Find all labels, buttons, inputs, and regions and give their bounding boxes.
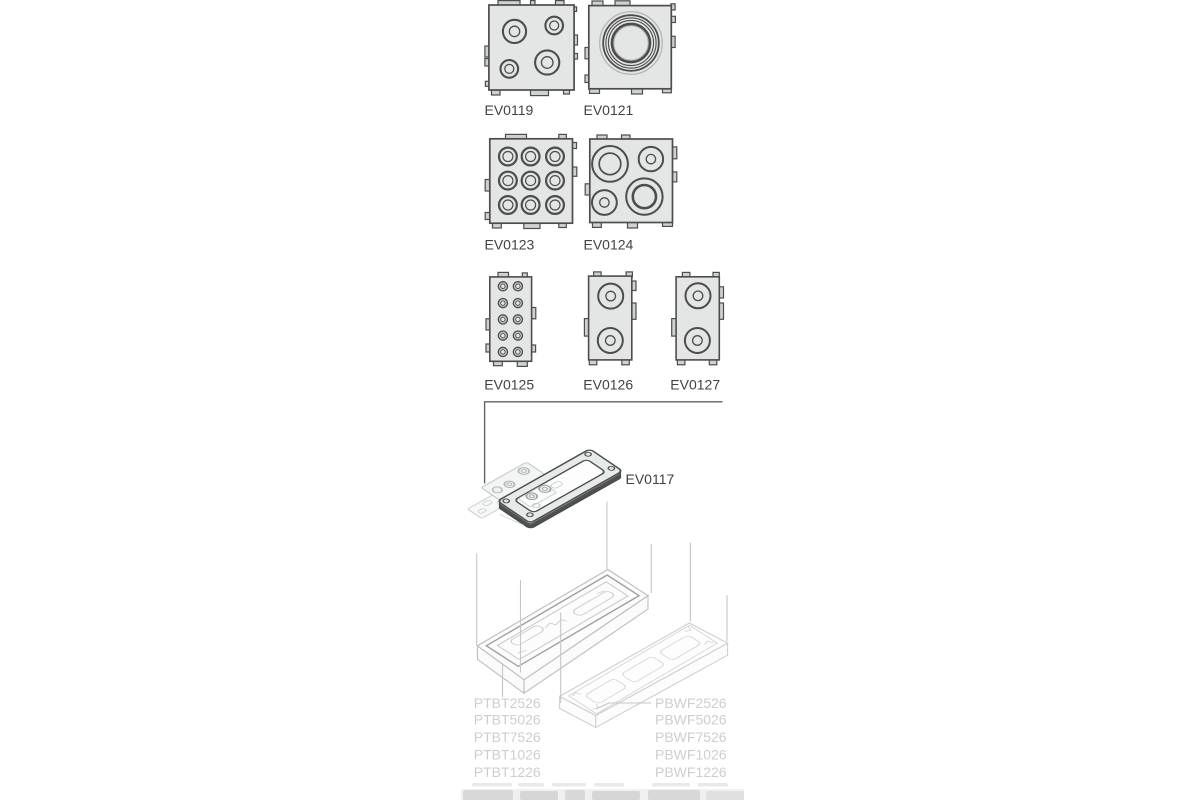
svg-text:PTBT1026: PTBT1026 [474,746,541,762]
svg-text:EV0117: EV0117 [626,471,675,487]
svg-text:PTBT1226: PTBT1226 [474,764,541,780]
svg-text:PBWF1026: PBWF1026 [655,746,727,762]
svg-text:PBWF2526: PBWF2526 [655,695,727,711]
svg-text:EV0123: EV0123 [485,236,535,252]
svg-text:EV0127: EV0127 [670,377,720,393]
svg-text:EV0126: EV0126 [583,377,633,393]
svg-text:PBWF5026: PBWF5026 [655,711,727,727]
svg-text:PBWF7526: PBWF7526 [655,729,727,745]
svg-text:EV0125: EV0125 [484,377,534,393]
svg-text:PTBT2526: PTBT2526 [474,695,541,711]
svg-text:EV0124: EV0124 [584,236,634,252]
svg-text:PTBT5026: PTBT5026 [474,711,541,727]
svg-text:EV0121: EV0121 [584,102,634,118]
svg-text:EV0119: EV0119 [485,102,534,118]
svg-text:PBWF1226: PBWF1226 [655,764,727,780]
svg-text:PTBT7526: PTBT7526 [474,729,541,745]
